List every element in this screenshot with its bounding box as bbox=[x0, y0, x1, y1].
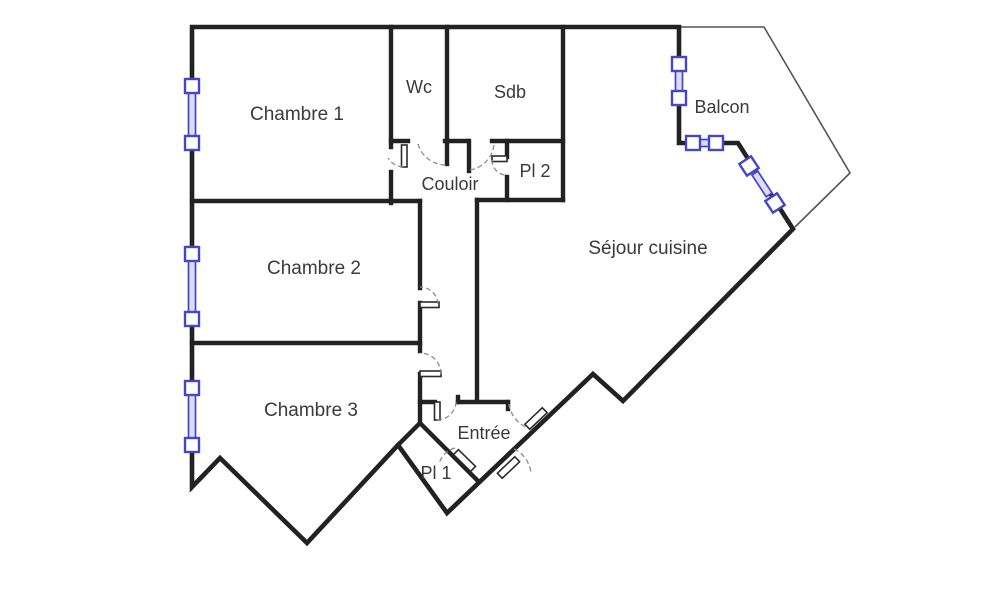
room-label-chambre-3: Chambre 3 bbox=[264, 400, 358, 421]
window-chambre-2 bbox=[185, 247, 199, 326]
door-chambre-1 bbox=[402, 145, 408, 167]
room-label-sejour-cuisine: Séjour cuisine bbox=[588, 238, 707, 259]
window-balcon-diagonal bbox=[739, 156, 784, 212]
room-label-sdb: Sdb bbox=[494, 82, 526, 102]
door-chambre-3 bbox=[420, 371, 441, 377]
door-arc-wc bbox=[418, 144, 446, 165]
room-label-entree: Entrée bbox=[457, 423, 510, 443]
room-label-pl-2: Pl 2 bbox=[519, 161, 550, 181]
window-balcon-horizontal bbox=[686, 136, 723, 150]
room-label-pl-1: Pl 1 bbox=[420, 463, 451, 483]
window-chambre-3 bbox=[185, 381, 199, 452]
room-label-balcon: Balcon bbox=[694, 97, 749, 117]
room-label-wc: Wc bbox=[406, 77, 432, 97]
door-couloir-entree bbox=[435, 402, 441, 420]
room-labels: Chambre 1 Wc Sdb Balcon Couloir Pl 2 Séj… bbox=[250, 77, 750, 483]
floor-plan-page: Chambre 1 Wc Sdb Balcon Couloir Pl 2 Séj… bbox=[0, 0, 1003, 604]
door-pl-2 bbox=[492, 156, 507, 162]
window-chambre-1 bbox=[185, 79, 199, 150]
door-chambre-2 bbox=[420, 302, 439, 308]
door-arc-sdb bbox=[470, 145, 494, 170]
room-label-chambre-2: Chambre 2 bbox=[267, 258, 361, 279]
balcony-outline bbox=[679, 27, 850, 227]
room-label-couloir: Couloir bbox=[421, 174, 478, 194]
window-balcon-vertical bbox=[672, 57, 686, 105]
floor-plan-drawing: Chambre 1 Wc Sdb Balcon Couloir Pl 2 Séj… bbox=[0, 0, 1003, 604]
room-label-chambre-1: Chambre 1 bbox=[250, 104, 344, 125]
